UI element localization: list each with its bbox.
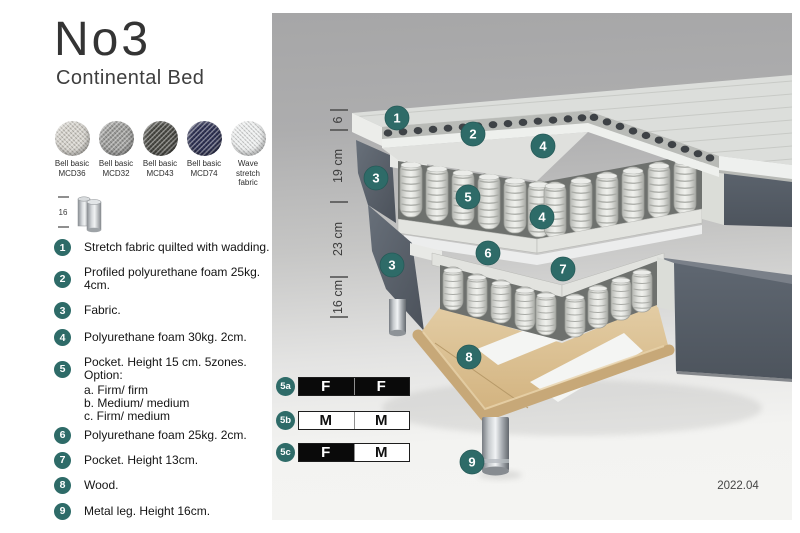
fabric-swatch-circle	[143, 121, 178, 156]
callout-9: 9	[460, 450, 484, 474]
legend-number-badge: 2	[54, 271, 71, 288]
swatch-label: MCD43	[138, 169, 182, 179]
legend-number-badge: 5	[54, 361, 71, 378]
legend-option: b. Medium/ medium	[84, 397, 272, 410]
legend-text: Wood.	[84, 479, 118, 492]
swatch-label: Bell basic	[138, 159, 182, 169]
swatch-label: MCD74	[182, 169, 226, 179]
leg-height-value: 16	[59, 208, 68, 217]
svg-text:4: 4	[539, 139, 547, 154]
fabric-swatch-item: Bell basic MCD43	[138, 121, 182, 188]
legend-text: Fabric.	[84, 304, 121, 317]
callout-3-upper: 3	[364, 166, 388, 190]
legend-number-badge: 9	[54, 503, 71, 520]
firmness-badge: 5b	[276, 411, 295, 430]
rear-left-leg	[389, 299, 406, 336]
dim-label-mattress: 19 cm	[331, 149, 345, 183]
page-subtitle: Continental Bed	[56, 67, 204, 90]
firmness-bar: F M	[298, 443, 410, 462]
callout-1: 1	[385, 106, 409, 130]
swatch-label: MCD32	[94, 169, 138, 179]
svg-text:2: 2	[469, 127, 476, 142]
fabric-swatch-item: Bell basic MCD36	[50, 121, 94, 188]
legend-text: Polyurethane foam 30kg. 2cm.	[84, 331, 247, 344]
svg-text:7: 7	[559, 262, 566, 277]
legend-item-1: 1 Stretch fabric quilted with wadding.	[54, 239, 272, 256]
firmness-cell: M	[354, 412, 410, 429]
callout-4-upper: 4	[531, 134, 555, 158]
product-sheet: No3 Continental Bed Bell basic MCD36 Bel…	[0, 0, 800, 533]
fabric-swatch-circle	[187, 121, 222, 156]
leg-cylinders	[78, 197, 101, 233]
legend-item-2: 2 Profiled polyurethane foam 25kg. 4cm.	[54, 266, 272, 292]
swatch-label: stretch fabric	[226, 169, 270, 188]
legend-number-badge: 7	[54, 452, 71, 469]
firmness-row-5a: 5a F F	[276, 377, 410, 396]
swatch-label: Bell basic	[182, 159, 226, 169]
version-stamp: 2022.04	[710, 480, 766, 492]
swatch-label: Wave	[226, 159, 270, 169]
dim-label-topper: 6	[331, 116, 345, 123]
callout-5: 5	[456, 185, 480, 209]
legend-number-badge: 1	[54, 239, 71, 256]
swatch-label: Bell basic	[50, 159, 94, 169]
swatch-label: MCD36	[50, 169, 94, 179]
legend-text: Profiled polyurethane foam 25kg. 4cm.	[84, 266, 272, 292]
svg-text:3: 3	[388, 258, 395, 273]
dim-label-leg: 16 cm	[331, 280, 345, 314]
legend-text: Polyurethane foam 25kg. 2cm.	[84, 429, 247, 442]
legend-item-4: 4 Polyurethane foam 30kg. 2cm.	[54, 329, 272, 346]
svg-text:5: 5	[464, 190, 471, 205]
svg-text:3: 3	[372, 171, 379, 186]
fabric-swatch-item: Bell basic MCD74	[182, 121, 226, 188]
legend-list: 1 Stretch fabric quilted with wadding. 2…	[54, 239, 272, 530]
callout-7: 7	[551, 257, 575, 281]
callout-6: 6	[476, 241, 500, 265]
firmness-cell: F	[354, 378, 410, 395]
callout-4-lower: 4	[530, 205, 554, 229]
legend-text: Stretch fabric quilted with wadding.	[84, 241, 269, 254]
swatch-label: Bell basic	[94, 159, 138, 169]
svg-text:4: 4	[538, 210, 546, 225]
legend-number-badge: 6	[54, 427, 71, 444]
fabric-swatches: Bell basic MCD36 Bell basic MCD32 Bell b…	[50, 121, 270, 188]
page-title: No3	[54, 12, 151, 67]
callout-3-lower: 3	[380, 253, 404, 277]
dimension-labels: 6 19 cm 23 cm 16 cm	[331, 116, 345, 314]
firmness-cell: F	[299, 444, 354, 461]
legend-item-5-options: a. Firm/ firm b. Medium/ medium c. Firm/…	[84, 384, 272, 423]
legend-item-5: 5 Pocket. Height 15 cm. 5zones. Option:	[54, 356, 272, 382]
dim-label-base: 23 cm	[331, 222, 345, 256]
legend-item-6: 6 Polyurethane foam 25kg. 2cm.	[54, 427, 272, 444]
legend-option: a. Firm/ firm	[84, 384, 272, 397]
firmness-cell: F	[299, 378, 354, 395]
firmness-badge: 5c	[276, 443, 295, 462]
svg-text:1: 1	[393, 111, 400, 126]
fabric-swatch-item: Bell basic MCD32	[94, 121, 138, 188]
firmness-cell: M	[299, 412, 354, 429]
fabric-swatch-circle	[99, 121, 134, 156]
legend-item-8: 8 Wood.	[54, 477, 272, 494]
svg-text:9: 9	[468, 455, 475, 470]
legend-number-badge: 3	[54, 302, 71, 319]
fabric-swatch-circle	[55, 121, 90, 156]
firmness-row-5c: 5c F M	[276, 443, 410, 462]
legend-number-badge: 8	[54, 477, 71, 494]
firmness-badge: 5a	[276, 377, 295, 396]
legend-text: Metal leg. Height 16cm.	[84, 505, 210, 518]
firmness-bar: F F	[298, 377, 410, 396]
callout-2: 2	[461, 122, 485, 146]
svg-text:6: 6	[484, 246, 491, 261]
firmness-row-5b: 5b M M	[276, 411, 410, 430]
legend-number-badge: 4	[54, 329, 71, 346]
callout-8: 8	[457, 345, 481, 369]
firmness-cell: M	[354, 444, 410, 461]
legend-option: c. Firm/ medium	[84, 410, 272, 423]
fabric-swatch-circle	[231, 121, 266, 156]
fabric-swatch-item: Wave stretch fabric	[226, 121, 270, 188]
legend-item-3: 3 Fabric.	[54, 302, 272, 319]
legend-item-9: 9 Metal leg. Height 16cm.	[54, 503, 272, 520]
firmness-bar: M M	[298, 411, 410, 430]
legend-text: Pocket. Height 13cm.	[84, 454, 198, 467]
legend-item-7: 7 Pocket. Height 13cm.	[54, 452, 272, 469]
leg-height-icon: 16	[54, 188, 118, 241]
legend-text: Pocket. Height 15 cm. 5zones. Option:	[84, 356, 272, 382]
svg-text:8: 8	[465, 350, 472, 365]
